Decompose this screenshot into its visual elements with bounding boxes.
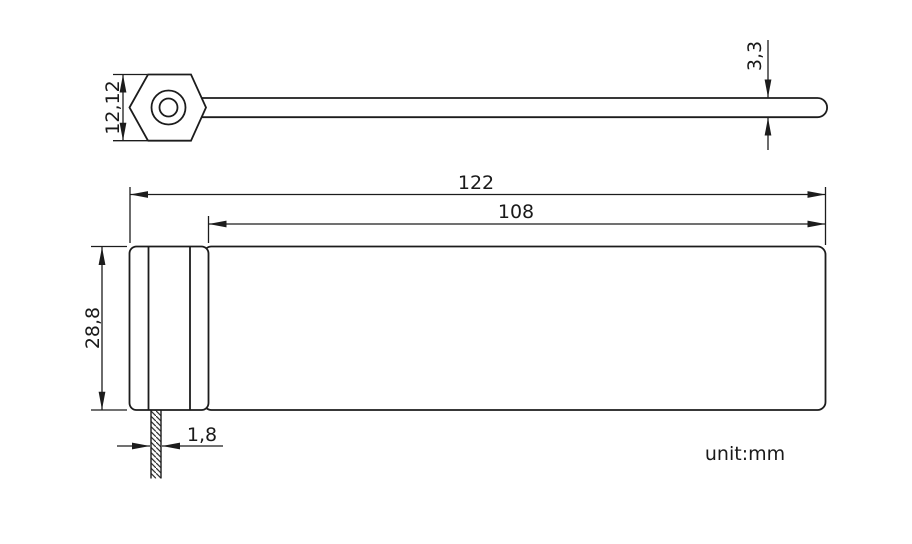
dim-strap-thickness-label: 1,8 bbox=[187, 424, 217, 446]
dim-body-width: 28,8 bbox=[82, 247, 127, 411]
front-view: 122 108 28,8 1,8 bbox=[82, 172, 826, 479]
dim-total-length: 122 bbox=[130, 172, 826, 245]
dim-strap-length-label: 108 bbox=[498, 201, 534, 223]
hatch-fill bbox=[151, 411, 161, 479]
dim-strap-thickness: 1,8 bbox=[117, 424, 223, 446]
strap-top-view bbox=[202, 98, 827, 117]
dim-strap-length: 108 bbox=[209, 201, 826, 243]
seal-technical-drawing: 12,12 3,3 bbox=[0, 0, 912, 544]
dim-head-height-label: 12,12 bbox=[102, 80, 124, 134]
dim-tail-thickness-label: 3,3 bbox=[744, 41, 766, 71]
dim-body-width-label: 28,8 bbox=[82, 307, 104, 349]
unit-label: unit:mm bbox=[705, 443, 785, 465]
drawing-canvas: 12,12 3,3 bbox=[0, 0, 912, 544]
dim-total-length-label: 122 bbox=[458, 172, 494, 194]
head-cap-outline bbox=[130, 247, 209, 411]
top-view: 12,12 3,3 bbox=[102, 40, 827, 150]
head-inner-circle bbox=[160, 99, 178, 117]
plate-outline bbox=[204, 247, 826, 411]
dim-tail-thickness: 3,3 bbox=[744, 40, 768, 150]
strap-cross-section bbox=[151, 411, 161, 479]
